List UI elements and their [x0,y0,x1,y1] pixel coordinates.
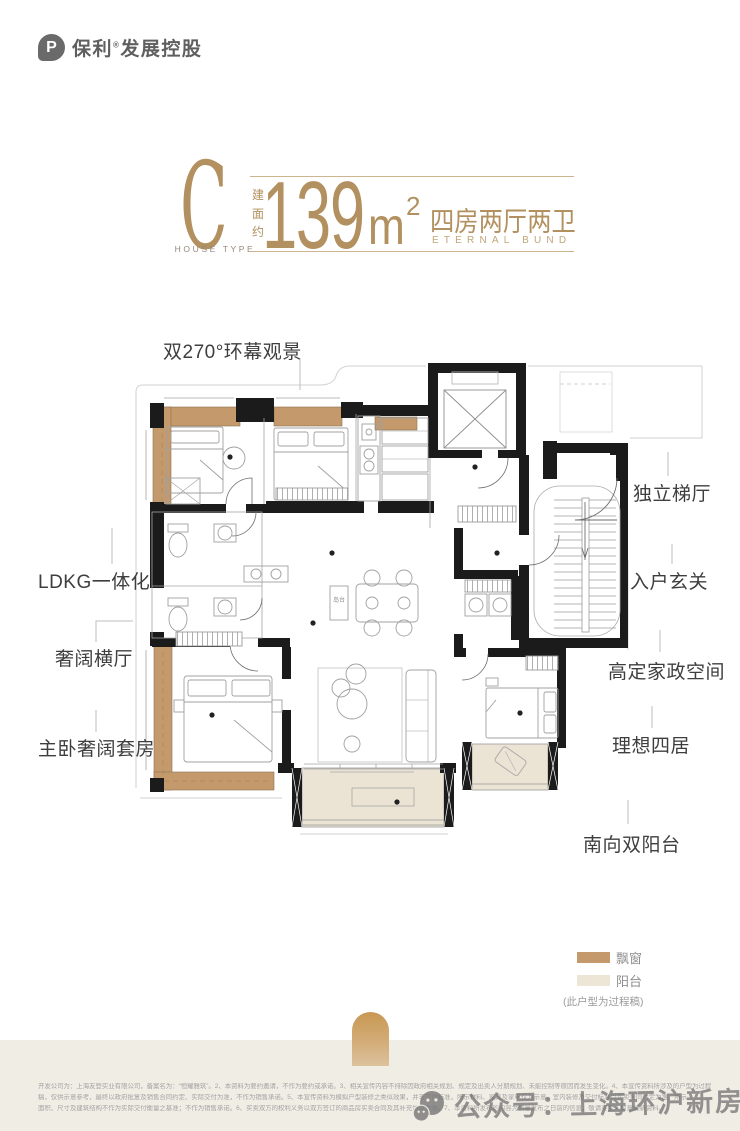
poly-p-icon: P [38,34,65,61]
bed-room-a [166,427,245,504]
utility-room [465,580,511,616]
wechat-icon [412,1088,449,1123]
label-panorama: 双270°环幕观景 [163,337,302,364]
layout-subtitle: ETERNAL BUND [432,235,571,246]
house-type-caption: HOUSE TYPE [160,244,270,254]
bay-window-label: 飘窗 [616,948,642,967]
master-bed [174,632,282,762]
legend-row-bay-window: 飘窗 [577,948,644,967]
living-set [318,664,436,762]
label-ldkg: LDKG一体化 [38,567,150,594]
label-master: 主卧奢阔套房 [38,734,155,761]
area-unit: m [368,201,405,253]
legend-row-balcony: 阳台 [577,971,644,990]
furniture [166,416,558,762]
label-foyer: 入户玄关 [630,567,708,594]
watermark: 公众号：上海环沪新房最全线 [412,1078,740,1126]
label-housework: 高定家政空间 [608,657,725,684]
entry-cabinet [458,506,516,522]
brand-text: 保利®发展控股 [72,34,202,61]
area-exponent: 2 [406,193,420,219]
island-label: 岛台 [333,596,345,604]
label-stair: 独立梯厅 [633,479,711,506]
balcony-label: 阳台 [616,971,642,990]
brand-logo: P 保利®发展控股 [38,34,202,61]
label-south-balcony: 南向双阳台 [583,830,681,857]
elevator [444,372,506,448]
balconies [302,744,548,827]
bed-room-b [274,428,348,500]
arch-ornament [352,1012,389,1066]
legend: 飘窗 阳台 (此户型为过程稿) [577,948,644,1009]
bathrooms [168,524,288,631]
label-four-rooms: 理想四居 [612,731,690,758]
balcony-swatch [577,975,610,986]
bay-window-dashes [162,416,270,786]
stairwell [534,486,620,636]
area-number: 139 [262,168,364,264]
bay-window-swatch [577,952,610,963]
label-hall: 奢阔横厅 [55,644,133,671]
legend-note: (此户型为过程稿) [563,994,644,1009]
bed-room-c [486,656,558,738]
layout-text: 四房两厅两卫 [430,200,576,239]
poster-page: { "brand": { "name": "保利", "registered":… [0,0,740,1131]
watermark-text: 公众号：上海环沪新房最全线 [454,1078,740,1125]
